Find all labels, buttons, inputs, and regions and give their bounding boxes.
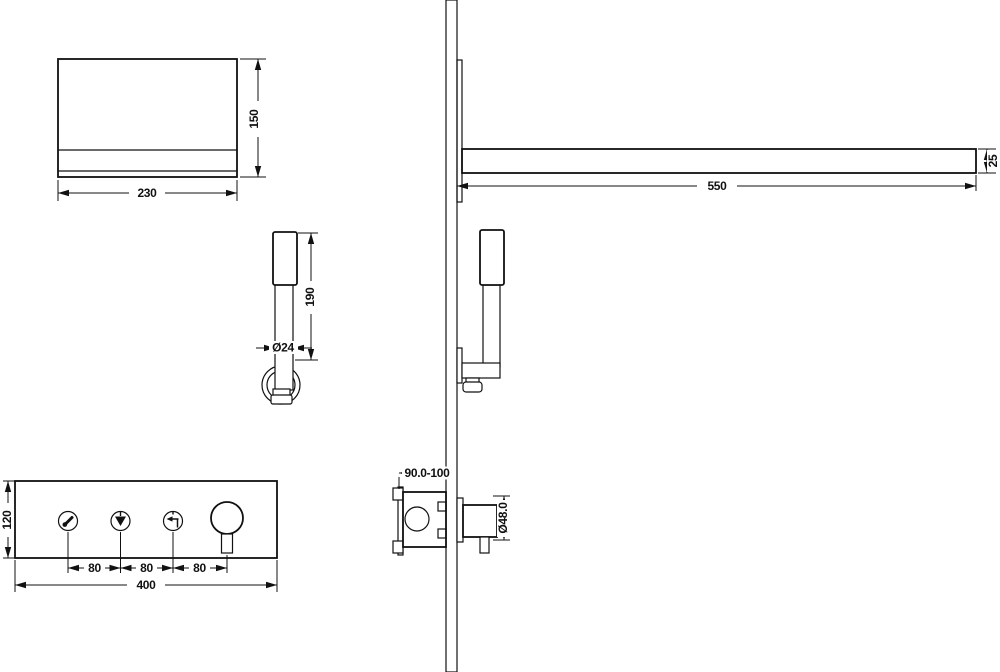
dim-label-wand-length: 190 [303,287,317,307]
shower-arm-side-view: 550 25 [457,60,1000,202]
dim-label-head-height: 150 [247,109,261,129]
hose-nut-lower-side [463,382,482,392]
hand-shower-front-view: 190 Ø24 [256,232,318,404]
panel-outline [15,481,277,558]
wand-handle [275,284,293,390]
bracket-wall-plate [457,348,462,383]
shower-head-outline [58,59,237,177]
wall-section [446,0,457,672]
arm-outline [462,149,976,173]
technical-drawing: 150 230 550 25 190 [0,0,1000,672]
dim-label-arm-thickness: 25 [986,154,1000,167]
dim-label-arm-length: 550 [707,179,727,193]
wall-hatch [446,0,457,672]
hand-shower-wall-bracket-view [457,230,504,392]
control-panel-front-view: 120 80 80 80 400 [0,481,277,592]
dim-label-knob-diameter: Ø48.0 [496,502,510,534]
hose-nut-lower [271,395,292,404]
dim-label-panel-height: 120 [0,510,14,530]
shower-head-front-view: 150 230 [58,59,266,201]
dim-label-spacing-3: 80 [193,561,206,575]
wand-head [273,232,297,285]
dim-label-spacing-1: 80 [88,561,101,575]
trim-knob-stem [480,537,489,553]
dim-label-head-width: 230 [137,186,157,200]
dim-label-spacing-2: 80 [140,561,153,575]
valve-body [403,492,446,547]
mixer-valve-side-view: 90.0-100 Ø48.0 [393,466,510,555]
wand-handle-side [483,285,500,367]
dim-label-valve-depth: 90.0-100 [405,466,451,480]
dim-label-panel-width: 400 [136,578,156,592]
trim-knob [463,505,497,537]
valve-tab-top [393,488,403,500]
bracket-arm [462,363,500,378]
wand-head-side [480,230,504,285]
drawing-canvas: 150 230 550 25 190 [0,0,1000,672]
main-knob-stem [222,534,233,553]
valve-tab-bottom [393,541,403,553]
dim-label-wand-diameter: Ø24 [272,341,294,355]
arm-wall-plate [457,60,462,202]
main-knob [211,502,243,534]
